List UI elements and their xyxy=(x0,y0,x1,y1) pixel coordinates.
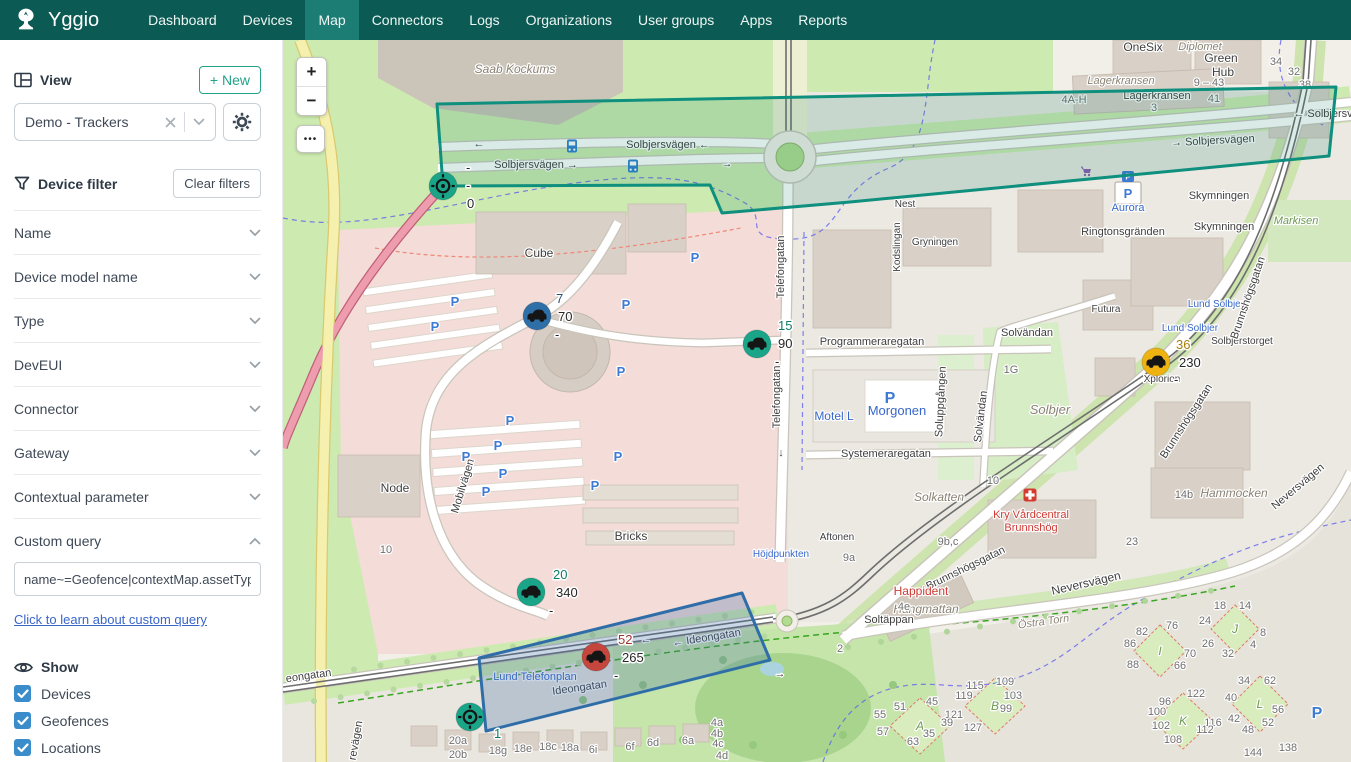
map-label: L xyxy=(1257,697,1264,711)
map-label: 99 xyxy=(1000,703,1012,715)
map-label: 4e xyxy=(898,601,910,613)
marker-value-label: 20 xyxy=(553,567,567,582)
map-label: 82 xyxy=(1136,626,1148,638)
checkbox-locations[interactable] xyxy=(14,739,31,756)
map-label: Telefongatan xyxy=(771,366,783,429)
map-label: 4 xyxy=(1250,639,1256,651)
map-label: 63 xyxy=(907,736,919,748)
map-label: 1G xyxy=(1004,364,1019,376)
map-label: 86 xyxy=(1124,638,1136,650)
show-option-label: Devices xyxy=(41,686,91,702)
map-label: Lagerkransen xyxy=(1087,75,1154,87)
marker-value-label: 1 xyxy=(494,726,501,741)
nav-item-organizations[interactable]: Organizations xyxy=(513,0,625,40)
map-label: 88 xyxy=(1127,659,1139,671)
eye-icon xyxy=(14,661,33,674)
filter-section-label: Contextual parameter xyxy=(14,489,149,505)
map-label: Nest xyxy=(895,199,916,210)
map-label: Aurora xyxy=(1111,202,1145,214)
marker-value-label: 340 xyxy=(556,585,578,600)
svg-text:P: P xyxy=(617,364,626,379)
map-label: 34 xyxy=(1238,675,1250,687)
filter-section-deveui[interactable]: DevEUI xyxy=(14,343,261,387)
sidebar: View + New Demo - Trackers xyxy=(0,40,283,762)
map-area[interactable]: PPPPPPPPPPPPPPPP Saab KockumsSolbjersväg… xyxy=(283,40,1351,762)
map-label: Skymningen xyxy=(1194,221,1255,233)
map-label: 20a xyxy=(449,735,468,747)
map-label: Happident xyxy=(894,584,949,598)
map-label: 100 xyxy=(1148,706,1166,718)
top-navbar: Yggio DashboardDevicesMapConnectorsLogsO… xyxy=(0,0,1351,40)
map-label: 18c xyxy=(539,741,557,753)
chevron-down-icon xyxy=(249,361,261,369)
map-label: Höjdpunkten xyxy=(753,549,809,560)
nav-item-user-groups[interactable]: User groups xyxy=(625,0,727,40)
map-label: Solbjer xyxy=(1030,402,1071,417)
show-option-locations: Locations xyxy=(14,739,261,756)
map-label: 109 xyxy=(996,676,1014,688)
filter-section-contextual-parameter[interactable]: Contextual parameter xyxy=(14,475,261,519)
app-title: Yggio xyxy=(48,9,99,32)
nav-item-map[interactable]: Map xyxy=(305,0,358,40)
map-label: → xyxy=(775,668,786,680)
map-label: 103 xyxy=(1004,690,1022,702)
map-label: 45 xyxy=(926,696,938,708)
map-label: 14b xyxy=(1175,489,1193,501)
parking-icon: P xyxy=(451,294,460,309)
map-label: 51 xyxy=(894,701,906,713)
map-label: 23 xyxy=(1126,536,1138,548)
map-label: 70 xyxy=(1184,648,1196,660)
map-more-options-button[interactable]: ••• xyxy=(296,125,325,153)
map-label: Solbjerstorget xyxy=(1211,336,1273,347)
map-label: Cube xyxy=(525,246,554,260)
map-label: 6f xyxy=(625,741,635,753)
svg-text:P: P xyxy=(506,413,515,428)
svg-text:P: P xyxy=(451,294,460,309)
filter-section-gateway[interactable]: Gateway xyxy=(14,431,261,475)
filter-funnel-icon xyxy=(14,176,30,191)
parking-icon: P xyxy=(431,319,440,334)
map-label: Markisen xyxy=(1274,215,1319,227)
map-label: 6d xyxy=(647,737,659,749)
parking-icon: P xyxy=(617,364,626,379)
marker-value-label: - xyxy=(466,178,470,193)
marker-value-label: 52 xyxy=(618,632,632,647)
marker-value-label: - xyxy=(1174,372,1178,387)
custom-query-help-link[interactable]: Click to learn about custom query xyxy=(14,612,207,627)
map-label: 18a xyxy=(561,742,580,754)
marker-value-label: 70 xyxy=(558,309,572,324)
map-label: 48 xyxy=(1242,724,1254,736)
marker-value-label: 36 xyxy=(1176,337,1190,352)
svg-text:P: P xyxy=(431,319,440,334)
map-label: 66 xyxy=(1174,660,1186,672)
map-label: Green xyxy=(1204,51,1237,65)
map-label: Gryningen xyxy=(912,237,958,248)
custom-query-input[interactable] xyxy=(14,562,261,596)
map-label: ↓ xyxy=(778,447,784,459)
map-label: B xyxy=(991,699,999,713)
map-label: Kodslingan xyxy=(892,222,903,271)
show-option-devices: Devices xyxy=(14,685,261,702)
map-label: 9a xyxy=(843,552,856,564)
marker-value-label: 230 xyxy=(1179,355,1201,370)
parking-icon: P xyxy=(591,478,600,493)
map-label: 56 xyxy=(1272,704,1284,716)
filter-section-label: Type xyxy=(14,313,44,329)
zoom-in-button[interactable]: + xyxy=(297,58,326,86)
map-label: Kry Vårdcentral xyxy=(993,509,1069,521)
view-select-value: Demo - Trackers xyxy=(25,114,165,130)
map-label: 127 xyxy=(964,722,982,734)
marker-value-label: 7 xyxy=(556,291,563,306)
map-label: Motel L xyxy=(814,409,854,423)
clear-filters-button[interactable]: Clear filters xyxy=(173,169,261,198)
svg-text:P: P xyxy=(1312,705,1323,722)
map-label: Programmeraregatan xyxy=(820,336,925,348)
map-label: 76 xyxy=(1166,620,1178,632)
filter-section-name[interactable]: Name xyxy=(14,211,261,255)
map-label: 20b xyxy=(449,749,467,761)
select-divider xyxy=(184,112,185,132)
parking-icon: P xyxy=(482,484,491,499)
map-canvas[interactable]: PPPPPPPPPPPPPPPP Saab KockumsSolbjersväg… xyxy=(283,40,1351,762)
clear-selection-icon[interactable] xyxy=(165,117,176,128)
map-label: 2 xyxy=(837,643,843,655)
map-label: Soltäppan xyxy=(864,614,914,626)
show-options: DevicesGeofencesLocations xyxy=(14,685,261,756)
map-label: 10 xyxy=(380,544,392,556)
map-label: Saab Kockums xyxy=(475,62,556,76)
svg-text:P: P xyxy=(591,478,600,493)
nav-item-reports[interactable]: Reports xyxy=(785,0,860,40)
map-label: Aftonen xyxy=(820,532,854,543)
filter-section-label: Device model name xyxy=(14,269,138,285)
filter-section-custom-query[interactable]: Custom query xyxy=(14,519,261,562)
map-label: 10 xyxy=(987,475,999,487)
yggio-tree-logo-icon xyxy=(13,7,39,33)
map-label: 8 xyxy=(1260,627,1266,639)
chevron-up-icon xyxy=(249,537,261,545)
nav-item-dashboard[interactable]: Dashboard xyxy=(135,0,230,40)
map-label: 9b,c xyxy=(938,536,959,548)
view-layout-icon xyxy=(14,72,32,88)
map-label: 4d xyxy=(716,750,728,762)
device-filter-title: Device filter xyxy=(14,176,117,192)
nav-item-apps[interactable]: Apps xyxy=(727,0,785,40)
map-label: 62 xyxy=(1264,675,1276,687)
marker-value-label: 90 xyxy=(778,336,792,351)
map-label: J xyxy=(1231,622,1239,636)
svg-text:P: P xyxy=(691,250,700,265)
map-label: 9 – 43 xyxy=(1194,77,1225,89)
map-label: 57 xyxy=(877,726,889,738)
map-label: 14 xyxy=(1239,600,1251,612)
map-label: 34 xyxy=(1270,56,1282,68)
map-label: 112 xyxy=(1196,724,1214,736)
map-label: 55 xyxy=(874,709,886,721)
map-label: 6a xyxy=(682,735,695,747)
marker-value-label: - xyxy=(466,160,470,175)
map-label: 26 xyxy=(1202,638,1214,650)
chevron-down-icon xyxy=(249,493,261,501)
map-label: 18 xyxy=(1214,600,1226,612)
show-option-label: Locations xyxy=(41,740,101,756)
map-label: 39 xyxy=(941,717,953,729)
svg-text:P: P xyxy=(614,449,623,464)
map-label: 32 xyxy=(1288,66,1300,78)
chevron-down-icon xyxy=(249,229,261,237)
view-select[interactable]: Demo - Trackers xyxy=(14,103,216,141)
map-label: Telefongatan xyxy=(775,236,787,299)
map-label: Brunnshög xyxy=(1004,522,1057,534)
view-section-title: View xyxy=(14,72,72,88)
map-label: Lund Solbjer xyxy=(1162,323,1219,334)
map-label: 119 xyxy=(955,690,973,702)
map-label: Bricks xyxy=(615,529,648,543)
map-label: 18e xyxy=(514,743,532,755)
zoom-out-button[interactable]: − xyxy=(297,87,326,115)
svg-text:P: P xyxy=(482,484,491,499)
show-option-geofences: Geofences xyxy=(14,712,261,729)
svg-text:P: P xyxy=(1124,186,1133,201)
map-label: Solvändan xyxy=(1001,327,1053,339)
marker-value-label: - xyxy=(614,668,618,683)
parking-icon: P xyxy=(506,413,515,428)
view-settings-button[interactable] xyxy=(223,103,261,141)
filter-section-device-model-name[interactable]: Device model name xyxy=(14,255,261,299)
filter-section-type[interactable]: Type xyxy=(14,299,261,343)
map-label: 40 xyxy=(1225,692,1237,704)
checkbox-geofences[interactable] xyxy=(14,712,31,729)
map-label: 24 xyxy=(1199,615,1211,627)
parking-icon: P xyxy=(1312,705,1323,722)
app-brand[interactable]: Yggio xyxy=(0,7,99,33)
map-label: Ringtonsgränden xyxy=(1081,226,1165,238)
map-label: Solkatten xyxy=(914,490,964,504)
map-label: 35 xyxy=(923,728,935,740)
map-label: 108 xyxy=(1164,734,1182,746)
marker-value-label: 265 xyxy=(622,650,644,665)
map-label: 6i xyxy=(589,744,598,756)
nav-item-devices[interactable]: Devices xyxy=(230,0,306,40)
map-label: Morgonen xyxy=(868,403,927,418)
nav-item-connectors[interactable]: Connectors xyxy=(359,0,457,40)
show-section-title: Show xyxy=(14,659,261,675)
filter-section-label: DevEUI xyxy=(14,357,62,373)
filter-section-label: Name xyxy=(14,225,51,241)
map-label: 52 xyxy=(1262,717,1274,729)
chevron-down-icon[interactable] xyxy=(193,118,205,126)
marker-value-label: - xyxy=(555,327,559,342)
parking-icon: P xyxy=(494,438,503,453)
map-label: Skymningen xyxy=(1189,190,1250,202)
map-label: Node xyxy=(381,481,410,495)
map-label: 144 xyxy=(1244,747,1262,759)
map-label: 122 xyxy=(1187,688,1205,700)
show-option-label: Geofences xyxy=(41,713,109,729)
svg-text:P: P xyxy=(499,466,508,481)
parking-icon: P xyxy=(614,449,623,464)
filter-section-label: Gateway xyxy=(14,445,69,461)
filter-section-connector[interactable]: Connector xyxy=(14,387,261,431)
map-label: K xyxy=(1179,714,1188,728)
chevron-down-icon xyxy=(249,405,261,413)
map-label: OneSix xyxy=(1123,40,1162,54)
filter-section-label: Custom query xyxy=(14,533,101,549)
chevron-down-icon xyxy=(249,449,261,457)
map-label: 18g xyxy=(489,745,507,757)
filter-section-list: NameDevice model nameTypeDevEUIConnector… xyxy=(14,210,261,562)
parking-icon: P xyxy=(622,297,631,312)
marker-value-label: 0 xyxy=(467,196,474,211)
svg-text:P: P xyxy=(494,438,503,453)
new-view-button[interactable]: + New xyxy=(199,66,261,94)
map-label: Systemeraregatan xyxy=(841,448,931,460)
marker-value-label: 15 xyxy=(778,318,792,333)
svg-text:P: P xyxy=(622,297,631,312)
chevron-down-icon xyxy=(249,273,261,281)
marker-value-label: - xyxy=(549,603,553,618)
checkbox-devices[interactable] xyxy=(14,685,31,702)
map-label: Futura xyxy=(1092,304,1121,315)
map-controls: + − ••• xyxy=(296,57,327,153)
parking-icon: P xyxy=(499,466,508,481)
chevron-down-icon xyxy=(249,317,261,325)
navbar-menu: DashboardDevicesMapConnectorsLogsOrganiz… xyxy=(135,0,860,40)
map-label: 32 xyxy=(1222,648,1234,660)
filter-section-label: Connector xyxy=(14,401,79,417)
marker-value-label: - xyxy=(775,354,779,369)
map-label: 4c xyxy=(712,738,724,750)
map-label: Hammocken xyxy=(1200,486,1268,500)
healthcare-icon xyxy=(1024,489,1037,502)
parking-icon: P xyxy=(691,250,700,265)
nav-item-logs[interactable]: Logs xyxy=(456,0,512,40)
gear-icon xyxy=(231,111,253,133)
map-label: 138 xyxy=(1279,742,1297,754)
map-label: 42 xyxy=(1228,713,1240,725)
zoom-control-group: + − xyxy=(296,57,327,116)
map-label: 102 xyxy=(1152,720,1170,732)
map-label: Lund Solbjer xyxy=(1188,299,1245,310)
